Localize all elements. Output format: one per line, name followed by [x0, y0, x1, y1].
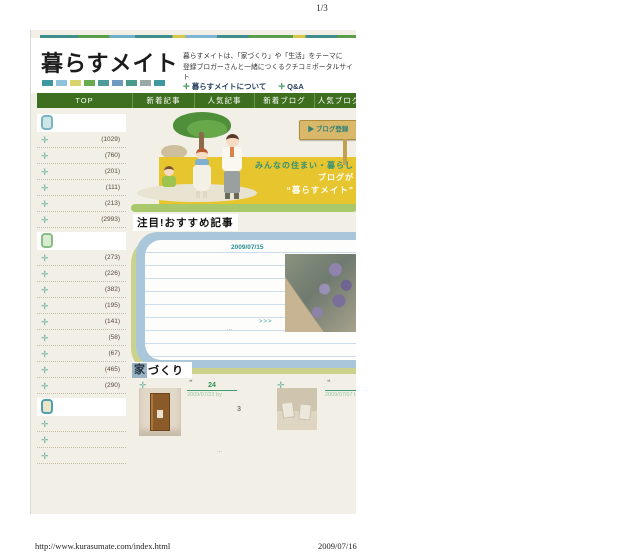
section-badge-icon	[41, 399, 53, 414]
featured-article-date: 2009/07/15	[231, 244, 264, 251]
tagline-line1: 暮らすメイトは、「家づくり」や「生活」をテーマに	[183, 52, 355, 63]
sidebar-item[interactable]: ✛ (67)	[37, 346, 126, 362]
plus-icon: ✛	[41, 419, 49, 429]
sidebar: ✛ (1029) ✛ (760) ✛ (201) ✛ (111) ✛ (213)…	[37, 112, 126, 464]
hero-illustration: ▶ ブログ登録 みんなの住まい・暮らし ブログが “暮らすメイト”	[131, 112, 356, 205]
sidebar-item[interactable]: ✛ (760)	[37, 148, 126, 164]
child-figure	[161, 166, 177, 192]
item-count: (1029)	[101, 136, 120, 143]
header-links: ✛暮らすメイトについて ✛Q&A	[183, 81, 314, 92]
featured-ellipsis: ...	[227, 326, 232, 332]
green-divider-band	[131, 204, 356, 212]
about-link[interactable]: ✛暮らすメイトについて	[183, 82, 266, 91]
article-meta: 2009/07/22 by	[187, 392, 245, 398]
sidebar-item[interactable]: ✛ (273)	[37, 250, 126, 266]
category-title-text: づくり	[148, 362, 184, 378]
plus-icon: ✛	[41, 301, 49, 311]
banner-line2: ブログが	[255, 172, 354, 184]
category-ellipsis: ...	[217, 448, 222, 454]
item-count: (213)	[105, 200, 120, 207]
plus-icon: ✛	[41, 451, 49, 461]
plus-icon: ✛	[41, 285, 49, 295]
plus-icon: ✛	[41, 183, 49, 193]
sidebar-item[interactable]: ✛	[37, 448, 126, 464]
sidebar-section2-header	[37, 232, 126, 250]
plus-icon: ✛	[41, 167, 49, 177]
banner-text: みんなの住まい・暮らし ブログが “暮らすメイト”	[255, 160, 354, 197]
nav-item-new-blogs[interactable]: 新着ブログ	[254, 93, 314, 108]
quote-icon: ❞	[327, 379, 331, 387]
sidebar-item[interactable]: ✛ (382)	[37, 282, 126, 298]
article-comment-count: 3	[237, 406, 241, 413]
sidebar-item[interactable]: ✛ (201)	[37, 164, 126, 180]
plus-icon: ✛	[41, 199, 49, 209]
item-count: (465)	[105, 366, 120, 373]
man-figure	[219, 134, 245, 200]
plus-icon: ✛	[41, 269, 49, 279]
sidebar-item[interactable]: ✛ (1029)	[37, 132, 126, 148]
item-count: (201)	[105, 168, 120, 175]
site-logo[interactable]: 暮らすメイト	[41, 46, 179, 78]
item-count: (273)	[105, 254, 120, 261]
logo-color-squares	[42, 80, 165, 86]
sidebar-item[interactable]: ✛	[37, 416, 126, 432]
banner-line1: みんなの住まい・暮らし	[255, 160, 354, 172]
section-badge-icon	[41, 233, 53, 248]
cross-icon: ✛	[183, 82, 190, 91]
item-count: (141)	[105, 318, 120, 325]
item-count: (195)	[105, 302, 120, 309]
sidebar-item[interactable]: ✛ (141)	[37, 314, 126, 330]
site-header: 暮らすメイト 暮らすメイトは、「家づくり」や「生活」をテーマに 登録ブロガーさん…	[31, 38, 356, 93]
sidebar-item[interactable]: ✛ (195)	[37, 298, 126, 314]
print-footer-url: http://www.kurasumate.com/index.html	[35, 541, 170, 551]
stat-underline	[187, 390, 237, 391]
cross-icon: ✛	[278, 82, 285, 91]
sidebar-item[interactable]: ✛ (2993)	[37, 212, 126, 228]
sidebar-section3-header	[37, 398, 126, 416]
qa-link[interactable]: ✛Q&A	[278, 82, 303, 91]
print-footer-date: 2009/07/16	[318, 541, 357, 551]
featured-section-title: 注目!おすすめ記事	[133, 214, 238, 231]
item-count: (58)	[108, 334, 120, 341]
article-thumbnail-door[interactable]	[139, 388, 181, 436]
sidebar-item[interactable]: ✛ (58)	[37, 330, 126, 346]
main-content: ▶ ブログ登録 みんなの住まい・暮らし ブログが “暮らすメイト” 注目!おすす…	[131, 112, 356, 514]
item-count: (2993)	[101, 216, 120, 223]
nav-item-new-articles[interactable]: 新着記事	[132, 93, 194, 108]
article-entry[interactable]: ✛ ❞ 2009/07/07 by B	[271, 380, 356, 442]
nav-item-top[interactable]: TOP	[37, 93, 132, 108]
nav-item-popular-blogs[interactable]: 人気ブログ	[314, 93, 356, 108]
print-preview-page: 1/3 暮らすメイト 暮らすメイトは、「家づくり」や「生活」をテーマに 登録ブロ…	[0, 0, 640, 555]
featured-article-box: 2009/07/15 ... >>>	[131, 232, 356, 374]
item-count: (67)	[108, 350, 120, 357]
plus-icon: ✛	[41, 435, 49, 445]
plus-icon: ✛	[41, 253, 49, 263]
banner-line3: “暮らすメイト”	[255, 184, 354, 197]
sidebar-item[interactable]: ✛ (213)	[37, 196, 126, 212]
category-title-iezukuri: 家 づくり	[132, 362, 192, 378]
site-tagline: 暮らすメイトは、「家づくり」や「生活」をテーマに 登録ブロガーさんと一緒につくる…	[183, 52, 355, 84]
item-count: (290)	[105, 382, 120, 389]
webpage-screenshot: 暮らすメイト 暮らすメイトは、「家づくり」や「生活」をテーマに 登録ブロガーさん…	[30, 30, 356, 514]
article-thumbnail-chairs[interactable]	[277, 388, 317, 430]
plus-icon: ✛	[41, 317, 49, 327]
sidebar-item[interactable]: ✛ (226)	[37, 266, 126, 282]
woman-figure	[191, 146, 213, 198]
plus-icon: ✛	[41, 215, 49, 225]
main-nav: TOP 新着記事 人気記事 新着ブログ 人気ブログ	[37, 93, 356, 108]
section-badge-icon	[41, 115, 53, 130]
item-count: (226)	[105, 270, 120, 277]
article-meta: 2009/07/07 by B	[325, 392, 356, 398]
blog-register-button[interactable]: ▶ ブログ登録	[299, 120, 356, 140]
article-count-link[interactable]: 24	[187, 382, 237, 389]
plus-icon: ✛	[41, 365, 49, 375]
sidebar-item[interactable]: ✛ (290)	[37, 378, 126, 394]
plus-icon: ✛	[41, 381, 49, 391]
plus-icon: ✛	[41, 135, 49, 145]
page-number: 1/3	[300, 3, 344, 13]
sidebar-item[interactable]: ✛	[37, 432, 126, 448]
category-icon: 家	[132, 363, 147, 378]
sidebar-item[interactable]: ✛ (111)	[37, 180, 126, 196]
item-count: (760)	[105, 152, 120, 159]
featured-more-link[interactable]: >>>	[259, 319, 273, 325]
featured-article-photo[interactable]	[285, 254, 356, 332]
nav-item-popular-articles[interactable]: 人気記事	[194, 93, 254, 108]
plus-icon: ✛	[41, 349, 49, 359]
item-count: (111)	[106, 184, 120, 191]
stat-underline	[325, 390, 356, 391]
article-entry[interactable]: ✛ ❞ 24 2009/07/22 by 3	[133, 380, 245, 442]
sidebar-item[interactable]: ✛ (465)	[37, 362, 126, 378]
sidebar-section1-header	[37, 114, 126, 132]
plus-icon: ✛	[41, 333, 49, 343]
item-count: (382)	[105, 286, 120, 293]
plus-icon: ✛	[41, 151, 49, 161]
